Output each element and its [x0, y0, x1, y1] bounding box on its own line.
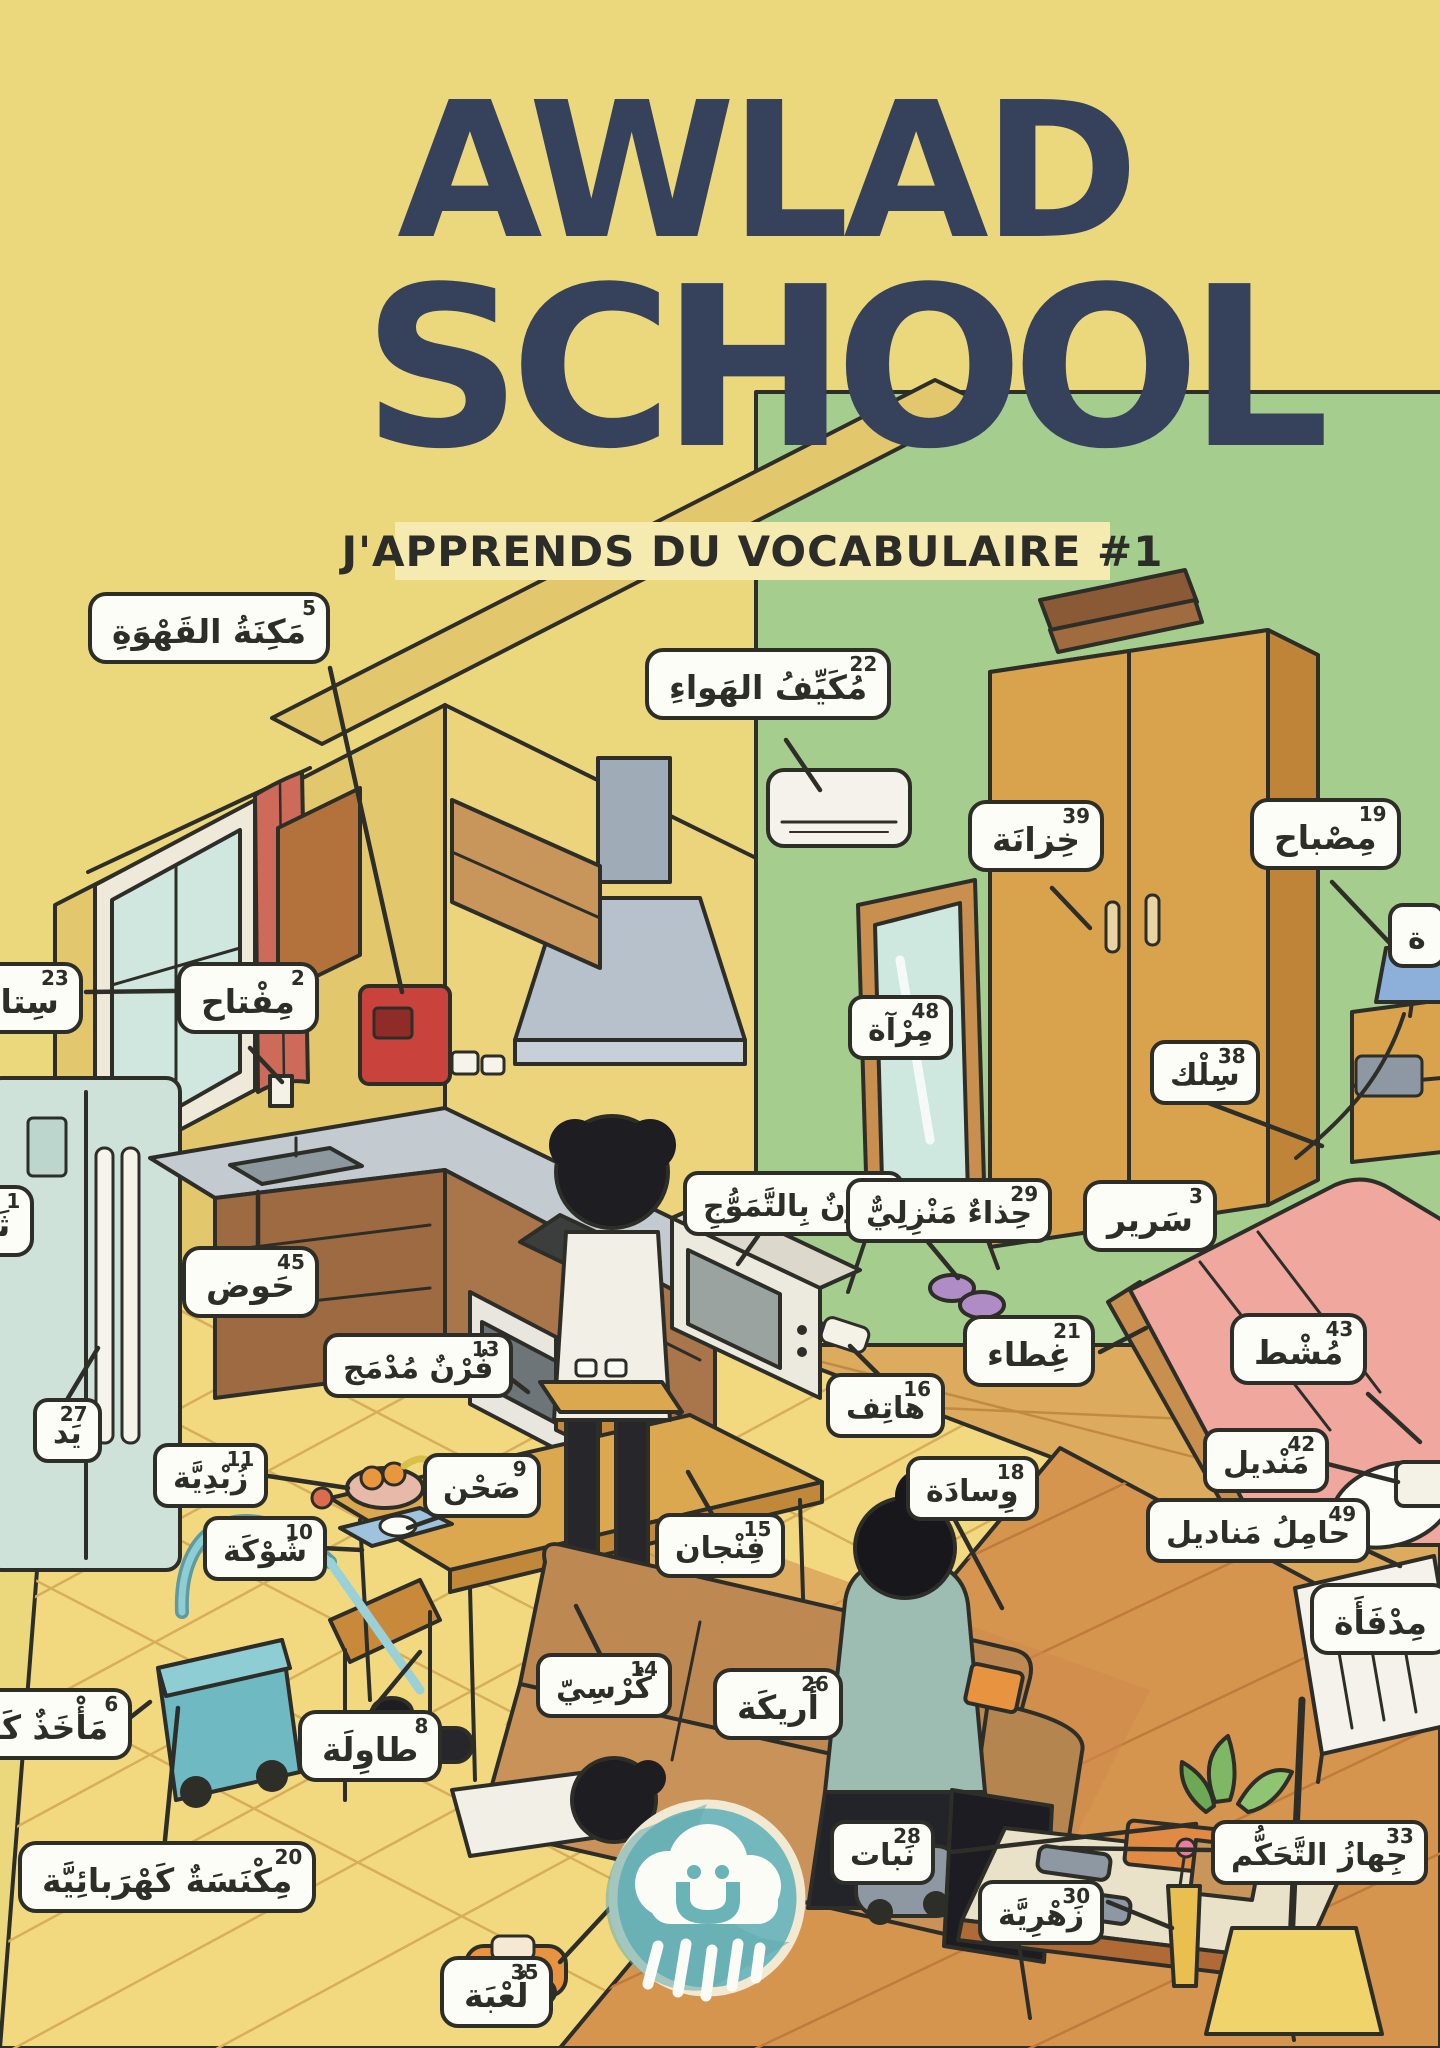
label-switch: 2 مِفْتاح [177, 962, 319, 1034]
label-outlet: 6 مَأْخَذٌ كَهْرَبائِيّ [0, 1688, 132, 1760]
label-number: 45 [277, 1252, 305, 1272]
label-number: 20 [275, 1847, 303, 1867]
label-number: 21 [1053, 1321, 1081, 1341]
label-number: 33 [1386, 1826, 1414, 1846]
label-number: 28 [893, 1826, 921, 1846]
label-lamp: 19 مِصْباح [1250, 798, 1401, 870]
label-plant: 28 نَبات [830, 1820, 935, 1885]
label-number: 29 [1010, 1184, 1038, 1204]
label-text: صَحْن [443, 1471, 521, 1506]
subtitle-band: J'APPRENDS DU VOCABULAIRE #1 [395, 522, 1110, 580]
label-vacuum: 20 مِكْنَسَةٌ كَهْرَبائِيَّة [18, 1841, 316, 1913]
label-table: 8 طاوِلَة [298, 1710, 442, 1782]
label-tissue: 42 مَنْديل [1203, 1428, 1329, 1493]
label-bed: 3 سَرير [1083, 1180, 1217, 1252]
label-number: 43 [1326, 1319, 1354, 1339]
wardrobe [990, 570, 1318, 1247]
poster: AWLAD SCHOOL J'APPRENDS DU VOCABULAIRE #… [0, 0, 1440, 2048]
label-text: حامِلُ مَناديل [1166, 1516, 1350, 1551]
label-number: 27 [60, 1404, 88, 1424]
label-sofa: 26 أَريكَة [713, 1668, 843, 1740]
label-number: 30 [1062, 1886, 1090, 1906]
label-text: حِذاءٌ مَنْزِلِيٌّ [866, 1196, 1032, 1231]
label-number: 13 [472, 1339, 500, 1359]
label-number: 16 [903, 1379, 931, 1399]
title-line-awlad: AWLAD [397, 78, 1133, 266]
label-text: مِدْفَأَة [1334, 1603, 1427, 1642]
label-text: ة [1408, 921, 1426, 956]
label-text: طاوِلَة [322, 1730, 418, 1769]
label-number: 2 [291, 968, 305, 988]
label-wardrobe: 39 خِزانَة [968, 800, 1104, 872]
label-number: 3 [1189, 1186, 1203, 1206]
label-text: جِهازُ التَّحَكُّم [1231, 1838, 1408, 1873]
label-vase: 30 زَهْرِيَّة [978, 1880, 1104, 1945]
label-slippers: 29 حِذاءٌ مَنْزِلِيٌّ [846, 1178, 1052, 1243]
label-number: 35 [511, 1962, 539, 1982]
label-number: 23 [41, 968, 69, 988]
label-text: مُكَيِّفُ الهَواءِ [669, 668, 867, 707]
label-number: 42 [1287, 1434, 1315, 1454]
label-pillow: 18 وِسادَة [906, 1456, 1039, 1521]
label-number: 6 [104, 1694, 118, 1714]
label-text: مِفْتاح [201, 982, 295, 1021]
label-cup: 15 فِنْجان [655, 1513, 785, 1578]
label-text: مَأْخَذٌ كَهْرَبائِيّ [0, 1708, 108, 1747]
title-line-school: SCHOOL [362, 258, 1318, 480]
label-fridge: 1 ثَلّاجَة [0, 1185, 34, 1257]
subtitle-text: J'APPRENDS DU VOCABULAIRE #1 [342, 527, 1164, 576]
label-plate: 9 صَحْن [423, 1453, 541, 1518]
label-tissue-holder: 49 حامِلُ مَناديل [1146, 1498, 1370, 1563]
label-comb: 43 مُشْط [1230, 1313, 1367, 1385]
label-number: 14 [630, 1659, 658, 1679]
label-number: 26 [801, 1674, 829, 1694]
label-number: 10 [285, 1522, 313, 1542]
nightstand [1352, 1000, 1440, 1162]
label-number: 8 [414, 1716, 428, 1736]
label-remote-control: 33 جِهازُ التَّحَكُّم [1211, 1820, 1428, 1885]
label-heater: مِدْفَأَة [1310, 1583, 1440, 1655]
label-text: مِكْنَسَةٌ كَهْرَبائِيَّة [42, 1861, 292, 1900]
label-air-conditioner: 22 مُكَيِّفُ الهَواءِ [645, 648, 891, 720]
label-fork: 10 شَوْكَة [203, 1516, 327, 1581]
label-number: 5 [302, 598, 316, 618]
label-chair: 14 كُرْسِيّ [536, 1653, 672, 1718]
label-number: 22 [849, 654, 877, 674]
label-sink: 45 حَوض [182, 1246, 319, 1318]
label-number: 11 [226, 1449, 254, 1469]
air-conditioner [768, 770, 910, 846]
label-nightstand-partial: ة [1388, 903, 1440, 968]
label-number: 39 [1062, 806, 1090, 826]
label-mirror: 48 مِرْآة [848, 995, 953, 1060]
label-number: 48 [911, 1001, 939, 1021]
label-toy: 35 لُعْبَة [440, 1956, 553, 2028]
label-blanket: 21 غِطاء [963, 1315, 1095, 1387]
label-curtain: 23 سِتارَة [0, 962, 83, 1034]
label-number: 9 [513, 1459, 527, 1479]
label-phone: 16 هاتِف [826, 1373, 945, 1438]
label-number: 15 [744, 1519, 772, 1539]
label-number: 49 [1328, 1504, 1356, 1524]
label-coffee-machine: 5 مَكِنَةُ القَهْوَةِ [88, 592, 330, 664]
label-number: 38 [1218, 1046, 1246, 1066]
label-text: مَكِنَةُ القَهْوَةِ [112, 612, 306, 651]
label-number: 1 [6, 1191, 20, 1211]
label-bowl: 11 زُبْدِيَّة [153, 1443, 268, 1508]
label-wire: 38 سِلْك [1150, 1040, 1260, 1105]
label-built-in-oven: 13 فُرْنٌ مُدْمَج [323, 1333, 513, 1398]
label-number: 19 [1359, 804, 1387, 824]
label-number: 18 [997, 1462, 1025, 1482]
label-hand: 27 يَد [33, 1398, 102, 1463]
label-text: سَرير [1107, 1200, 1193, 1239]
